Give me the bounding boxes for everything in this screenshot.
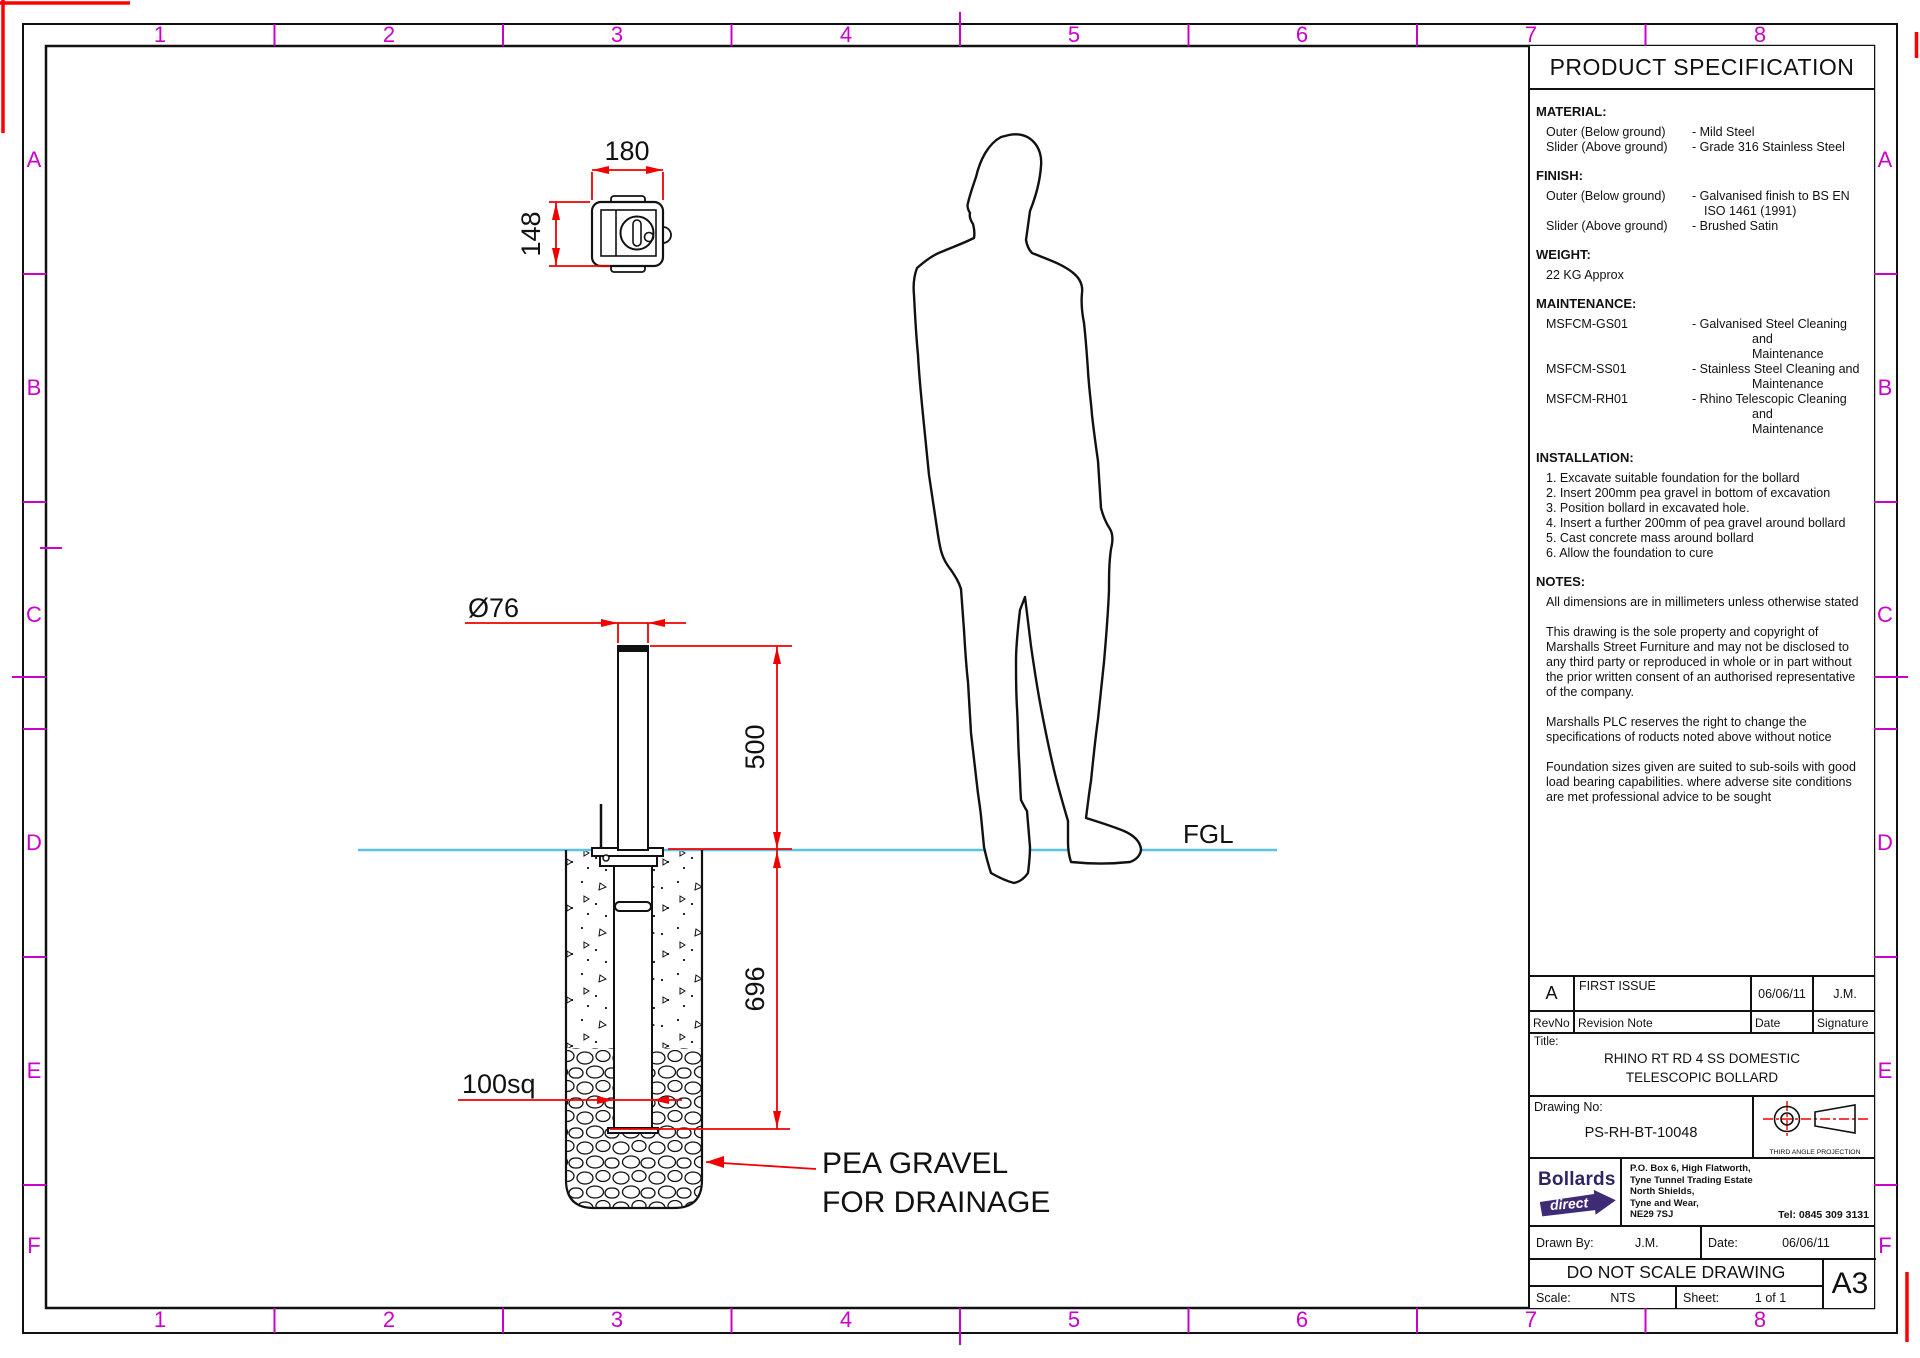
drawn-by-value: J.M. — [1594, 1236, 1700, 1250]
installation-heading: INSTALLATION: — [1536, 450, 1868, 465]
finish-name: Outer (Below ground) — [1546, 189, 1692, 219]
drawing-no-row: Drawing No: PS-RH-BT-10048 THIRD ANGLE P… — [1530, 1095, 1874, 1157]
grid-col-label: 3 — [611, 1307, 623, 1333]
material-value: - Mild Steel — [1692, 125, 1868, 140]
grid-col-label: 6 — [1296, 1307, 1308, 1333]
grid-col-label: 2 — [383, 22, 395, 48]
third-angle-projection-icon — [1761, 1100, 1871, 1140]
grid-row-label: F — [1878, 1233, 1891, 1259]
drawing-no-cell: Drawing No: PS-RH-BT-10048 — [1530, 1097, 1752, 1157]
maintenance-heading: MAINTENANCE: — [1536, 296, 1868, 311]
revision-signature: J.M. — [1814, 977, 1876, 1010]
grid-row-label: E — [1878, 1058, 1893, 1084]
grid-row-label: B — [27, 375, 42, 401]
grid-row-label: C — [1877, 602, 1893, 628]
dim-tube-square: 100sq — [462, 1069, 536, 1099]
grid-row-label: D — [26, 830, 42, 856]
human-figure — [914, 134, 1141, 883]
sheet-label: Sheet: — [1677, 1291, 1719, 1305]
company-address-cell: P.O. Box 6, High Flatworth, Tyne Tunnel … — [1622, 1159, 1874, 1225]
grid-col-label: 8 — [1754, 1307, 1766, 1333]
grid-row-label: E — [27, 1058, 42, 1084]
material-heading: MATERIAL: — [1536, 104, 1868, 119]
address-line: P.O. Box 6, High Flatworth, — [1630, 1163, 1753, 1175]
address-line: NE29 7SJ — [1630, 1209, 1753, 1221]
drawing-no-label: Drawing No: — [1534, 1100, 1603, 1114]
finish-name: Slider (Above ground) — [1546, 219, 1692, 234]
address-line: Tyne and Wear, — [1630, 1198, 1753, 1210]
revision-header-note: Revision Note — [1575, 1012, 1752, 1034]
revision-header-rev: RevNo — [1530, 1012, 1575, 1034]
grid-col-label: 3 — [611, 22, 623, 48]
installation-step: 5. Cast concrete mass around bollard — [1536, 531, 1868, 546]
drawn-by-label: Drawn By: — [1530, 1236, 1594, 1250]
flange-hook — [603, 855, 609, 861]
logo-text-direct: direct — [1549, 1194, 1588, 1213]
maintenance-code: MSFCM-SS01 — [1546, 362, 1692, 392]
installation-step: 6. Allow the foundation to cure — [1536, 546, 1868, 561]
grid-row-label: C — [26, 602, 42, 628]
company-phone: Tel: 0845 309 3131 — [1778, 1209, 1869, 1221]
grid-col-label: 8 — [1754, 22, 1766, 48]
logo-arrow-icon: direct — [1539, 1188, 1617, 1219]
maintenance-row: MSFCM-GS01 - Galvanised Steel Cleaning a… — [1536, 317, 1868, 362]
grid-row-label: F — [27, 1233, 40, 1259]
grid-row-label: D — [1877, 830, 1893, 856]
grid-col-label: 5 — [1068, 1307, 1080, 1333]
grid-col-label: 4 — [840, 1307, 852, 1333]
installation-step: 3. Position bollard in excavated hole. — [1536, 501, 1868, 516]
pea-gravel-label-line2: FOR DRAINAGE — [822, 1186, 1050, 1219]
date-value: 06/06/11 — [1738, 1236, 1874, 1250]
note-paragraph: All dimensions are in millimeters unless… — [1536, 595, 1868, 610]
revision-table: A FIRST ISSUE 06/06/11 J.M. RevNo Revisi… — [1530, 975, 1874, 1032]
material-name: Outer (Below ground) — [1546, 125, 1692, 140]
drawn-by-row: Drawn By: J.M. Date: 06/06/11 — [1530, 1225, 1874, 1258]
spec-content: MATERIAL: Outer (Below ground) - Mild St… — [1530, 90, 1874, 975]
logo-text-bollards: Bollards — [1538, 1169, 1616, 1191]
maintenance-row: MSFCM-RH01 - Rhino Telescopic Cleaning a… — [1536, 392, 1868, 437]
slider-post — [618, 646, 648, 850]
address-line: Tyne Tunnel Trading Estate — [1630, 1175, 1753, 1187]
maintenance-desc: - Galvanised Steel Cleaning and Maintena… — [1692, 317, 1868, 362]
date-label: Date: — [1702, 1236, 1738, 1250]
installation-step: 4. Insert a further 200mm of pea gravel … — [1536, 516, 1868, 531]
revision-header-row: RevNo Revision Note Date Signature — [1530, 1010, 1874, 1034]
company-address: P.O. Box 6, High Flatworth, Tyne Tunnel … — [1630, 1163, 1753, 1221]
panel-title: PRODUCT SPECIFICATION — [1530, 46, 1874, 90]
finish-heading: FINISH: — [1536, 168, 1868, 183]
drawing-title-line2: TELESCOPIC BOLLARD — [1530, 1070, 1874, 1085]
maintenance-code: MSFCM-GS01 — [1546, 317, 1692, 362]
grid-col-label: 5 — [1068, 22, 1080, 48]
tube-crossbar — [615, 902, 651, 911]
weight-value: 22 KG Approx — [1536, 268, 1868, 283]
fgl-label: FGL — [1183, 819, 1234, 849]
installation-step: 1. Excavate suitable foundation for the … — [1536, 471, 1868, 486]
dim-above-ground: 500 — [740, 724, 770, 769]
material-name: Slider (Above ground) — [1546, 140, 1692, 155]
drawing-no-value: PS-RH-BT-10048 — [1530, 1125, 1752, 1141]
scale-cell: Scale: NTS — [1530, 1287, 1677, 1308]
plan-key-slot — [633, 220, 641, 246]
company-row: Bollards direct P.O. Box 6, High Flatwor… — [1530, 1157, 1874, 1225]
projection-cell: THIRD ANGLE PROJECTION — [1752, 1097, 1876, 1157]
projection-caption: THIRD ANGLE PROJECTION — [1754, 1149, 1876, 1156]
revision-row: A FIRST ISSUE 06/06/11 J.M. — [1530, 977, 1874, 1010]
installation-steps: 1. Excavate suitable foundation for the … — [1536, 471, 1868, 561]
grid-col-label: 1 — [154, 22, 166, 48]
maintenance-row: MSFCM-SS01 - Stainless Steel Cleaning an… — [1536, 362, 1868, 392]
scale-value: NTS — [1571, 1291, 1675, 1305]
revision-header-date: Date — [1752, 1012, 1814, 1034]
dim-post-diameter: Ø76 — [468, 593, 519, 623]
spec-panel: PRODUCT SPECIFICATION MATERIAL: Outer (B… — [1528, 46, 1874, 1308]
installation-step: 2. Insert 200mm pea gravel in bottom of … — [1536, 486, 1868, 501]
dim-plan-width: 180 — [604, 136, 649, 166]
scale-row: Scale: NTS Sheet: 1 of 1 — [1530, 1285, 1822, 1308]
sheet-cell: Sheet: 1 of 1 — [1677, 1287, 1822, 1308]
material-row: Slider (Above ground) - Grade 316 Stainl… — [1536, 140, 1868, 155]
title-box: Title: RHINO RT RD 4 SS DOMESTIC TELESCO… — [1530, 1032, 1874, 1095]
maintenance-desc: - Rhino Telescopic Cleaning and Maintena… — [1692, 392, 1868, 437]
revision-header-signature: Signature — [1814, 1012, 1876, 1034]
grid-col-label: 7 — [1525, 22, 1537, 48]
finish-row: Outer (Below ground) - Galvanised finish… — [1536, 189, 1868, 219]
company-logo: Bollards direct — [1530, 1159, 1622, 1225]
title-label: Title: — [1534, 1036, 1559, 1048]
revision-date: 06/06/11 — [1752, 977, 1814, 1010]
sheet-size-badge: A3 — [1822, 1258, 1876, 1308]
note-paragraph: Marshalls PLC reserves the right to chan… — [1536, 715, 1868, 745]
scale-label: Scale: — [1530, 1291, 1571, 1305]
grid-row-label: B — [1878, 375, 1893, 401]
grid-row-label: A — [1878, 147, 1893, 173]
weight-heading: WEIGHT: — [1536, 247, 1868, 262]
dim-below-ground: 696 — [740, 966, 770, 1011]
grid-col-label: 4 — [840, 22, 852, 48]
revision-rev: A — [1530, 977, 1575, 1010]
finish-value: - Galvanised finish to BS EN ISO 1461 (1… — [1692, 189, 1868, 219]
grid-col-label: 6 — [1296, 22, 1308, 48]
date-cell: Date: 06/06/11 — [1702, 1227, 1874, 1258]
address-line: North Shields, — [1630, 1186, 1753, 1198]
grid-col-label: 2 — [383, 1307, 395, 1333]
drawn-by-cell: Drawn By: J.M. — [1530, 1227, 1702, 1258]
revision-note: FIRST ISSUE — [1575, 977, 1752, 1010]
do-not-scale-banner: DO NOT SCALE DRAWING — [1530, 1258, 1822, 1285]
bollard-plan-view — [592, 196, 671, 272]
material-row: Outer (Below ground) - Mild Steel — [1536, 125, 1868, 140]
drawing-title-line1: RHINO RT RD 4 SS DOMESTIC — [1530, 1051, 1874, 1066]
maintenance-code: MSFCM-RH01 — [1546, 392, 1692, 437]
finish-row: Slider (Above ground) - Brushed Satin — [1536, 219, 1868, 234]
note-paragraph: This drawing is the sole property and co… — [1536, 625, 1868, 700]
material-value: - Grade 316 Stainless Steel — [1692, 140, 1868, 155]
sheet-value: 1 of 1 — [1719, 1291, 1822, 1305]
maintenance-desc: - Stainless Steel Cleaning and Maintenan… — [1692, 362, 1868, 392]
dim-plan-height: 148 — [516, 211, 546, 256]
finish-value: - Brushed Satin — [1692, 219, 1868, 234]
pea-gravel-label-line1: PEA GRAVEL — [822, 1147, 1008, 1180]
note-paragraph: Foundation sizes given are suited to sub… — [1536, 760, 1868, 805]
grid-col-label: 7 — [1525, 1307, 1537, 1333]
grid-col-label: 1 — [154, 1307, 166, 1333]
grid-row-label: A — [27, 147, 42, 173]
notes-heading: NOTES: — [1536, 574, 1868, 589]
